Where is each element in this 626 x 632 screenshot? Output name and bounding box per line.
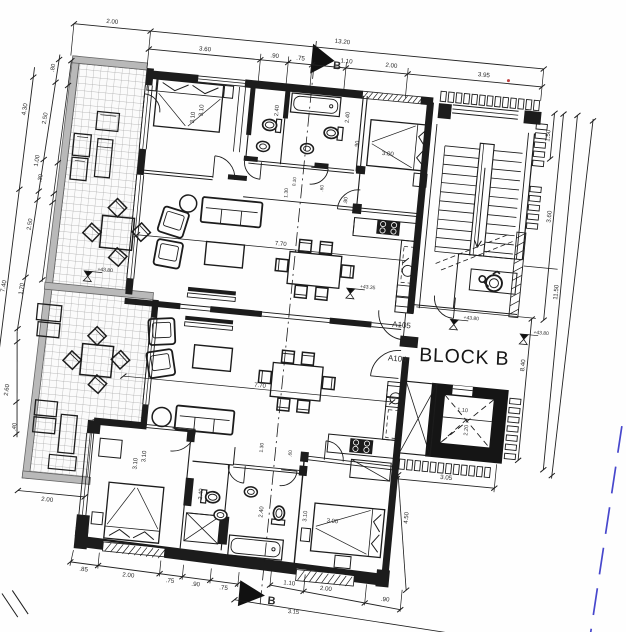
svg-text:.40: .40 [11, 423, 18, 432]
svg-text:.90: .90 [354, 140, 361, 148]
svg-text:2.00: 2.00 [122, 571, 135, 579]
svg-text:4.50: 4.50 [404, 511, 411, 524]
svg-text:2.00: 2.00 [41, 496, 54, 504]
svg-text:3.00: 3.00 [382, 151, 395, 158]
svg-text:1.10: 1.10 [340, 57, 353, 65]
svg-text:0.10: 0.10 [291, 176, 297, 186]
svg-text:2.40: 2.40 [198, 488, 205, 500]
svg-text:3.00: 3.00 [326, 518, 339, 525]
svg-text:3.10: 3.10 [199, 104, 206, 117]
svg-text:7.70: 7.70 [275, 241, 288, 248]
svg-text:.75: .75 [165, 577, 175, 585]
svg-text:.60: .60 [319, 184, 326, 192]
svg-text:.75: .75 [296, 55, 306, 63]
svg-text:1.10: 1.10 [283, 579, 296, 587]
svg-text:.90: .90 [381, 596, 391, 604]
svg-text:1.30: 1.30 [283, 188, 290, 198]
svg-text:2.40: 2.40 [258, 506, 265, 518]
svg-text:3.60: 3.60 [546, 210, 554, 223]
svg-text:3.10: 3.10 [141, 450, 148, 463]
svg-text:A104: A104 [388, 353, 408, 364]
svg-text:1.30: 1.30 [259, 442, 266, 452]
svg-text:2.20: 2.20 [463, 425, 470, 436]
svg-text:.60: .60 [287, 450, 294, 458]
svg-text:3.05: 3.05 [440, 474, 453, 482]
svg-text:2.00: 2.00 [320, 585, 333, 593]
svg-text:3.10: 3.10 [190, 111, 197, 124]
svg-text:.75: .75 [219, 584, 229, 592]
svg-text:2.40: 2.40 [345, 112, 352, 124]
svg-text:3.60: 3.60 [199, 45, 212, 53]
svg-text:3.95: 3.95 [478, 71, 491, 79]
svg-text:1.50: 1.50 [544, 129, 552, 142]
svg-text:.90: .90 [270, 52, 280, 60]
svg-text:3.15: 3.15 [288, 609, 300, 616]
svg-text:2.00: 2.00 [106, 18, 119, 26]
svg-text:7.70: 7.70 [254, 383, 267, 390]
svg-text:2.00: 2.00 [385, 62, 398, 70]
svg-text:3.10: 3.10 [302, 511, 309, 522]
svg-text:BLOCK B: BLOCK B [419, 344, 510, 370]
svg-text:1.10: 1.10 [457, 407, 468, 414]
svg-text:.90: .90 [191, 581, 201, 589]
svg-text:.85: .85 [79, 566, 89, 574]
svg-text:3.10: 3.10 [132, 457, 139, 470]
svg-text:A105: A105 [392, 320, 412, 331]
svg-text:2.40: 2.40 [274, 105, 281, 117]
svg-text:8.40: 8.40 [519, 358, 527, 371]
svg-text:11.50: 11.50 [552, 284, 560, 300]
svg-text:.80: .80 [343, 197, 350, 205]
